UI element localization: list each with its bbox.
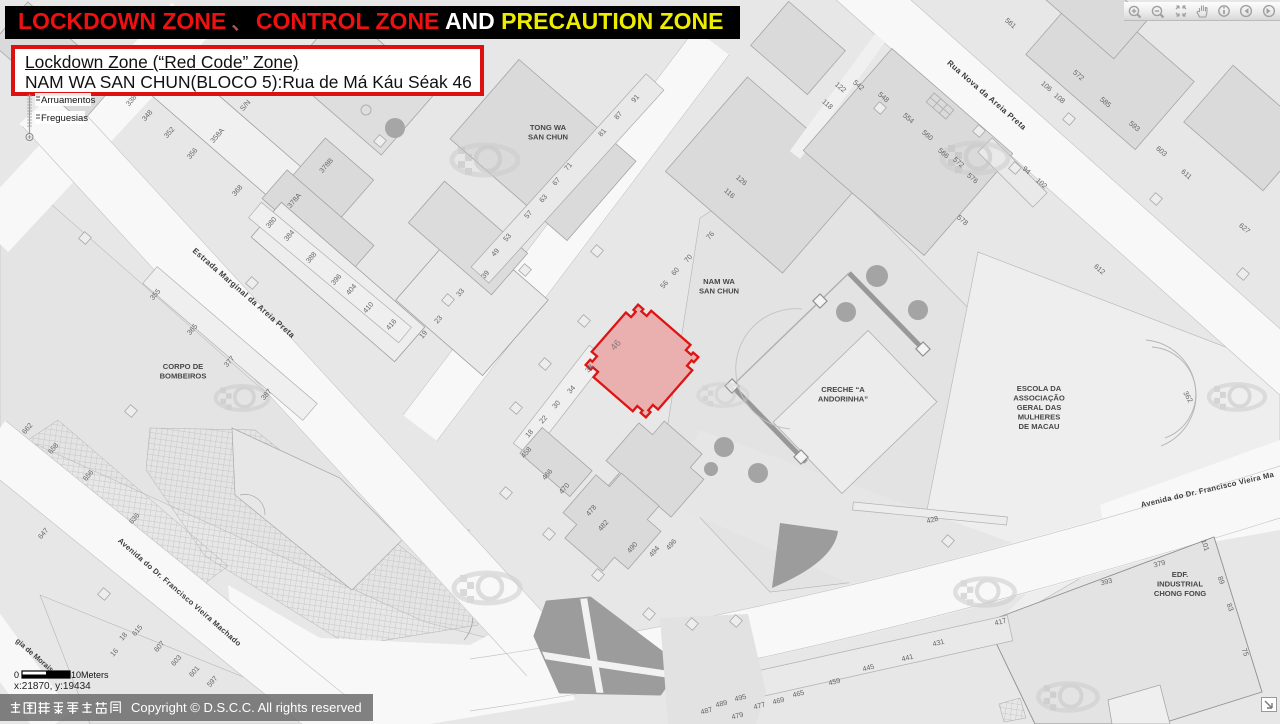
svg-text:MULHERES: MULHERES [1018,413,1061,422]
svg-text:SAN CHUN: SAN CHUN [528,133,568,142]
svg-text:DE MACAU: DE MACAU [1019,422,1060,431]
svg-text:ANDORINHA”: ANDORINHA” [818,395,868,404]
svg-text:TONG WA: TONG WA [530,123,567,132]
svg-text:SAN CHUN: SAN CHUN [699,287,739,296]
svg-text:10Meters: 10Meters [71,670,109,680]
svg-text:BOMBEIROS: BOMBEIROS [160,372,207,381]
svg-text:INDUSTRIAL: INDUSTRIAL [1157,580,1203,589]
svg-text:NAM WA: NAM WA [703,277,735,286]
svg-text:ESCOLA DA: ESCOLA DA [1017,384,1062,393]
svg-text:CHONG FONG: CHONG FONG [1154,589,1206,598]
svg-text:CRECHE “A: CRECHE “A [821,385,865,394]
svg-text:Arruamentos: Arruamentos [41,95,96,106]
svg-text:CORPO DE: CORPO DE [163,362,204,371]
svg-text:GERAL DAS: GERAL DAS [1017,403,1062,412]
svg-text:0: 0 [14,670,19,680]
svg-text:ASSOCIAÇÃO: ASSOCIAÇÃO [1013,394,1065,403]
svg-text:Freguesias: Freguesias [41,113,88,124]
svg-text:EDF.: EDF. [1172,570,1188,579]
